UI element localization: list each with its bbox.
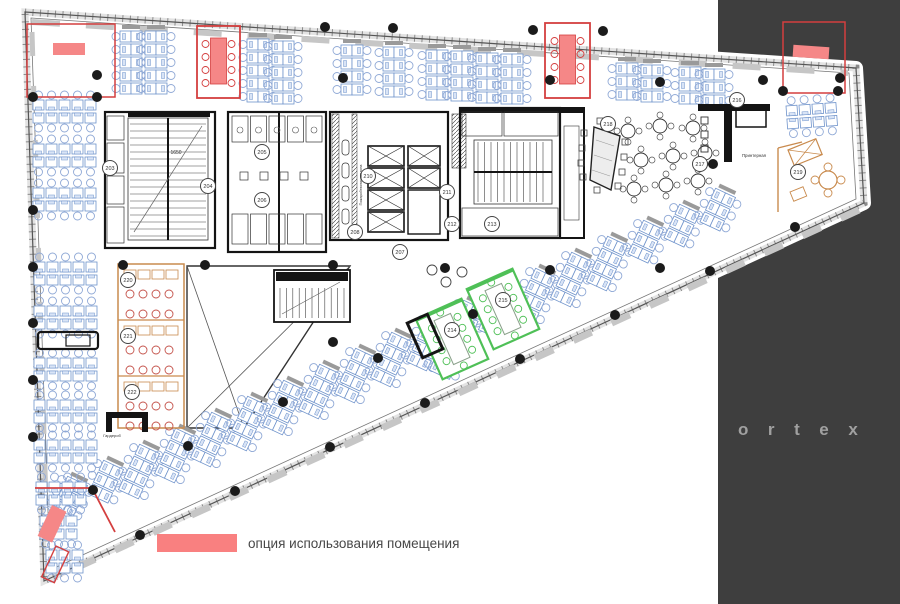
svg-text:207: 207	[395, 250, 404, 256]
svg-text:203: 203	[105, 166, 114, 172]
atrium-stair	[274, 270, 350, 322]
wardrobe-unit	[106, 412, 148, 418]
legend: опция использования помещения	[157, 534, 459, 552]
svg-text:221: 221	[123, 334, 132, 340]
svg-text:214: 214	[447, 328, 456, 334]
svg-text:Пожаробезопасная зона: Пожаробезопасная зона	[359, 165, 363, 206]
wardrobe-unit	[106, 418, 112, 432]
wardrobe-unit	[142, 418, 148, 432]
svg-text:204: 204	[203, 184, 212, 190]
svg-text:215: 215	[498, 298, 507, 304]
svg-text:222: 222	[127, 390, 136, 396]
svg-text:217: 217	[695, 162, 704, 168]
svg-text:210: 210	[363, 174, 372, 180]
svg-text:212: 212	[447, 222, 456, 228]
svg-text:1650: 1650	[170, 150, 181, 156]
svg-text:205: 205	[257, 150, 266, 156]
svg-text:208: 208	[350, 230, 359, 236]
svg-text:216: 216	[732, 98, 741, 104]
svg-text:218: 218	[603, 122, 612, 128]
legend-swatch-red	[157, 534, 237, 552]
svg-text:220: 220	[123, 278, 132, 284]
floor-plan-drawing: 2032042052062072082102112122132142152162…	[0, 0, 900, 604]
legend-label: опция использования помещения	[248, 536, 459, 551]
svg-text:211: 211	[443, 190, 452, 196]
svg-text:213: 213	[487, 222, 496, 228]
svg-text:Гардероб: Гардероб	[103, 433, 121, 438]
svg-text:219: 219	[793, 170, 802, 176]
svg-text:206: 206	[257, 198, 266, 204]
svg-text:Принтерная: Принтерная	[742, 153, 767, 158]
screenshot-root: ortex 2032042052062072082102112122132142…	[0, 0, 900, 604]
